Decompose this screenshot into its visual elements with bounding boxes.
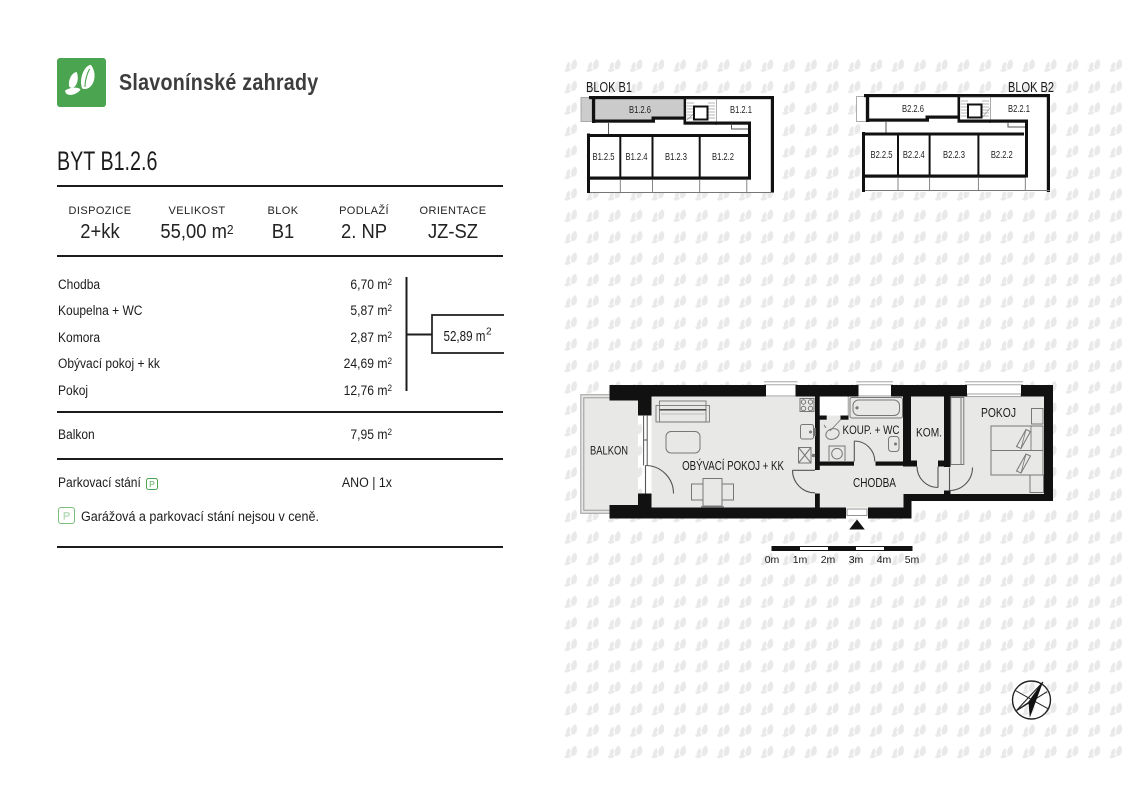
svg-text:B2.2.3: B2.2.3 (943, 149, 965, 160)
svg-text:B1.2.3: B1.2.3 (665, 151, 687, 162)
svg-text:3m: 3m (849, 554, 864, 566)
svg-text:OBÝVACÍ POKOJ + KK: OBÝVACÍ POKOJ + KK (682, 459, 784, 474)
svg-text:B1.2.5: B1.2.5 (593, 151, 615, 162)
svg-text:5m: 5m (905, 554, 920, 566)
svg-text:B1.2.4: B1.2.4 (626, 151, 648, 162)
svg-text:B2.2.5: B2.2.5 (871, 149, 893, 160)
svg-text:CHODBA: CHODBA (853, 477, 896, 490)
svg-text:KOM.: KOM. (916, 427, 942, 440)
svg-text:BLOK B2: BLOK B2 (1008, 78, 1054, 95)
svg-text:POKOJ: POKOJ (981, 406, 1016, 420)
svg-text:B1.2.6: B1.2.6 (629, 104, 651, 115)
svg-text:B2.2.1: B2.2.1 (1008, 103, 1030, 114)
svg-text:4m: 4m (877, 554, 892, 566)
svg-text:KOUP. + WC: KOUP. + WC (843, 424, 900, 437)
svg-text:2m: 2m (821, 554, 836, 566)
svg-text:1m: 1m (793, 554, 808, 566)
svg-text:BLOK B1: BLOK B1 (586, 78, 632, 95)
svg-text:B1.2.1: B1.2.1 (730, 104, 752, 115)
svg-text:0m: 0m (765, 554, 780, 566)
svg-text:BALKON: BALKON (590, 445, 628, 458)
svg-text:B2.2.4: B2.2.4 (903, 149, 925, 160)
svg-text:B2.2.2: B2.2.2 (991, 149, 1013, 160)
svg-text:B2.2.6: B2.2.6 (902, 103, 924, 114)
svg-text:B1.2.2: B1.2.2 (712, 151, 734, 162)
